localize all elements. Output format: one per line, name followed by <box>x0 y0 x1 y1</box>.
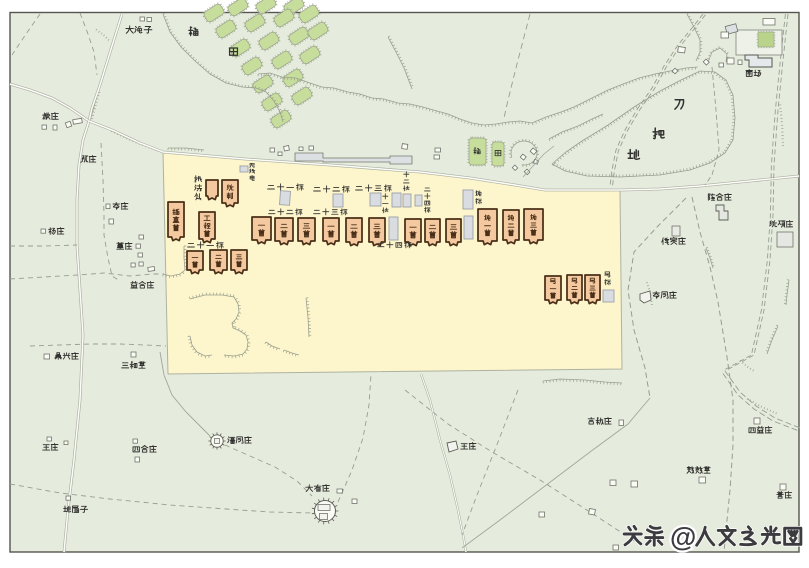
svg-text:@: @ <box>670 522 696 552</box>
